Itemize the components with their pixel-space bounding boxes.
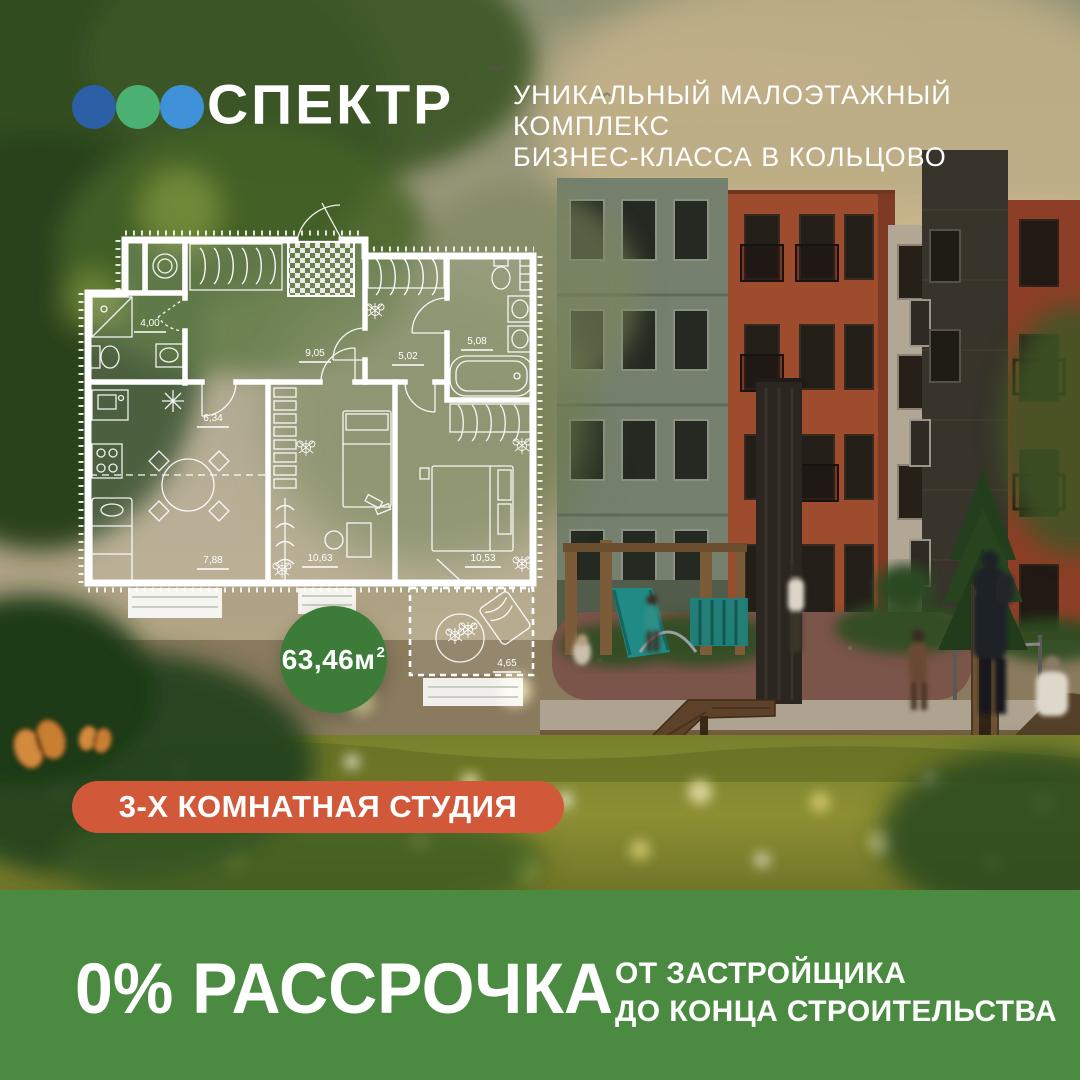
offer-sub-line2: ДО КОНЦА СТРОИТЕЛЬСТВА (615, 993, 1057, 1031)
tagline-line2: БИЗНЕС-КЛАССА В КОЛЬЦОВО (513, 142, 1080, 173)
brand-tagline: УНИКАЛЬНЫЙ МАЛОЭТАЖНЫЙ КОМПЛЕКС БИЗНЕС-К… (513, 80, 1080, 173)
building-red-brick (728, 192, 895, 650)
tagline-line1: УНИКАЛЬНЫЙ МАЛОЭТАЖНЫЙ КОМПЛЕКС (513, 80, 1080, 142)
room-label-bathroom2: 5,08 (467, 336, 487, 347)
room-label-dressing: 5,02 (398, 351, 418, 362)
brand-logo: СПЕКТР (207, 73, 454, 138)
offer-sub-line1: ОТ ЗАСТРОЙЩИКА (615, 955, 1057, 993)
shaft-checker (288, 242, 354, 296)
logo-dot-navy (72, 85, 116, 129)
room-label-kitchen: 6,34 (203, 413, 223, 424)
room-label-living: 7,88 (203, 555, 223, 566)
total-area-value: 63,46м (282, 644, 376, 676)
total-area-superscript: 2 (376, 644, 385, 661)
logo-dot-green (116, 85, 160, 129)
logo-dot-blue (160, 85, 204, 129)
room-label-balcony: 4,65 (497, 658, 517, 669)
offer-headline: 0% РАССРОЧКА (75, 948, 613, 1030)
room-label-bedroom1: 10,63 (307, 553, 332, 564)
apartment-type-badge: 3-Х КОМНАТНАЯ СТУДИЯ (72, 781, 564, 833)
room-label-bathroom: 4,00 (140, 318, 160, 329)
ad-poster: 4,00 9,05 5,02 5,08 6,34 7,88 10,63 10,5… (0, 0, 1080, 1080)
total-area-badge: 63,46м2 (280, 606, 387, 713)
offer-subtext: ОТ ЗАСТРОЙЩИКА ДО КОНЦА СТРОИТЕЛЬСТВА (615, 955, 1057, 1031)
apartment-type-label: 3-Х КОМНАТНАЯ СТУДИЯ (119, 789, 517, 825)
entrance-door (297, 203, 342, 240)
room-label-bedroom2: 10,53 (470, 553, 495, 564)
pergola-tower (752, 378, 806, 704)
room-label-hall: 9,05 (305, 348, 325, 359)
